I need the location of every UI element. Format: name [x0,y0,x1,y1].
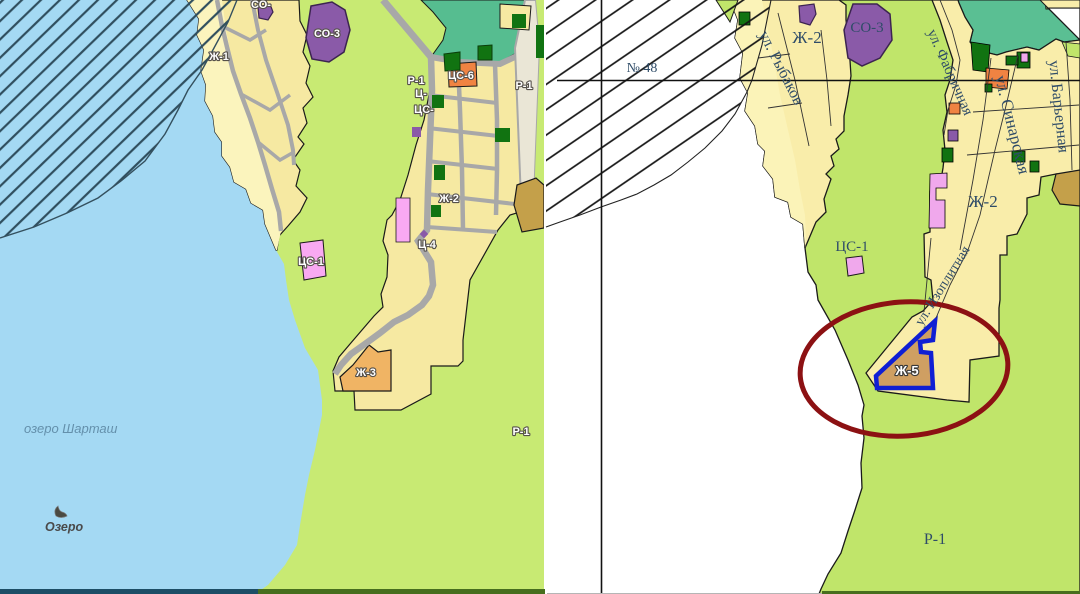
svg-text:ЦС-1: ЦС-1 [298,256,324,268]
svg-text:№ 48: № 48 [627,61,658,76]
svg-text:Р-1: Р-1 [407,75,424,87]
svg-text:Ж-3: Ж-3 [355,367,376,379]
svg-text:озеро Шарташ: озеро Шарташ [24,421,118,436]
svg-text:ЦС-: ЦС- [414,104,434,116]
svg-text:СО-: СО- [251,0,271,11]
svg-text:Ц-: Ц- [415,88,427,100]
svg-text:Ж-5: Ж-5 [894,363,918,378]
svg-text:ЦС-1: ЦС-1 [835,239,868,255]
svg-text:Ж-2: Ж-2 [792,28,821,47]
svg-text:Ж-1: Ж-1 [208,51,229,63]
svg-text:ЦС-6: ЦС-6 [448,70,474,82]
svg-text:Озеро: Озеро [45,520,84,534]
svg-text:СО-3: СО-3 [314,28,340,40]
svg-text:Р-1: Р-1 [515,80,532,92]
svg-text:Ж-2: Ж-2 [968,192,997,211]
svg-text:Р-1: Р-1 [924,531,946,548]
svg-text:Ж-2: Ж-2 [438,193,459,205]
svg-text:Ц-4: Ц-4 [418,239,437,251]
svg-text:СО-3: СО-3 [850,20,883,36]
svg-text:Р-1: Р-1 [512,426,529,438]
